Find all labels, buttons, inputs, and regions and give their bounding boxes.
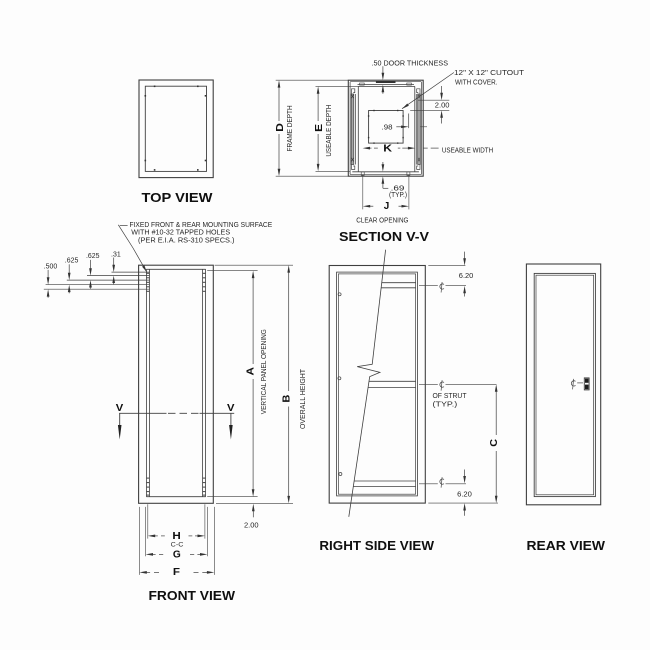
svg-text:OVERALL HEIGHT: OVERALL HEIGHT: [300, 368, 307, 429]
svg-text:(PER E.I.A. RS-310 SPECS.): (PER E.I.A. RS-310 SPECS.): [138, 237, 235, 244]
svg-text:2.00: 2.00: [435, 102, 450, 109]
svg-text:G: G: [173, 548, 181, 560]
svg-text:TOP VIEW: TOP VIEW: [142, 191, 213, 205]
svg-text:.625: .625: [65, 258, 79, 265]
svg-text:C: C: [488, 439, 500, 447]
svg-text:(TYP.): (TYP.): [433, 402, 458, 409]
svg-text:VERTICAL PANEL OPENING: VERTICAL PANEL OPENING: [261, 329, 268, 414]
svg-text:.500: .500: [44, 263, 58, 270]
svg-text:RIGHT SIDE VIEW: RIGHT SIDE VIEW: [319, 539, 434, 553]
svg-text:WITH COVER.: WITH COVER.: [455, 79, 498, 86]
svg-text:6.20: 6.20: [459, 273, 474, 280]
svg-text:FRAME DEPTH: FRAME DEPTH: [287, 105, 294, 151]
svg-text:6.20: 6.20: [457, 492, 472, 499]
svg-text:.50 DOOR THICKNESS: .50 DOOR THICKNESS: [372, 61, 449, 68]
svg-text:D: D: [274, 123, 286, 132]
svg-text:E: E: [313, 124, 325, 132]
svg-text:V: V: [227, 402, 235, 414]
svg-text:.98: .98: [382, 125, 393, 132]
svg-text:FIXED FRONT & REAR MOUNTIN: FIXED FRONT & REAR MOUNTING SURFACE: [130, 222, 273, 229]
svg-text:OF STRUT: OF STRUT: [433, 393, 468, 400]
svg-text:.31: .31: [111, 251, 121, 258]
svg-text:H: H: [172, 530, 180, 542]
svg-text:USEABLE DEPTH: USEABLE DEPTH: [326, 105, 333, 157]
svg-text:REAR VIEW: REAR VIEW: [527, 539, 606, 553]
svg-text:A: A: [245, 367, 257, 376]
svg-text:12" X 12" CUTOUT: 12" X 12" CUTOUT: [454, 70, 525, 77]
svg-text:CLEAR OPENING: CLEAR OPENING: [356, 218, 408, 225]
svg-text:2.00: 2.00: [244, 522, 259, 529]
svg-text:FRONT VIEW: FRONT VIEW: [149, 589, 236, 603]
svg-text:USEABLE WIDTH: USEABLE WIDTH: [442, 148, 493, 155]
svg-text:WITH #10-32 TAPPED HOLES: WITH #10-32 TAPPED HOLES: [131, 230, 230, 237]
svg-text:(TYP.): (TYP.): [389, 192, 407, 199]
svg-text:SECTION V-V: SECTION V-V: [339, 230, 430, 244]
svg-text:.625: .625: [86, 253, 100, 260]
svg-text:V: V: [116, 402, 124, 414]
svg-text:B: B: [281, 394, 293, 402]
svg-text:J: J: [384, 200, 390, 212]
svg-text:C-C: C-C: [171, 541, 184, 548]
svg-text:K: K: [383, 143, 392, 155]
svg-text:F: F: [173, 566, 181, 578]
